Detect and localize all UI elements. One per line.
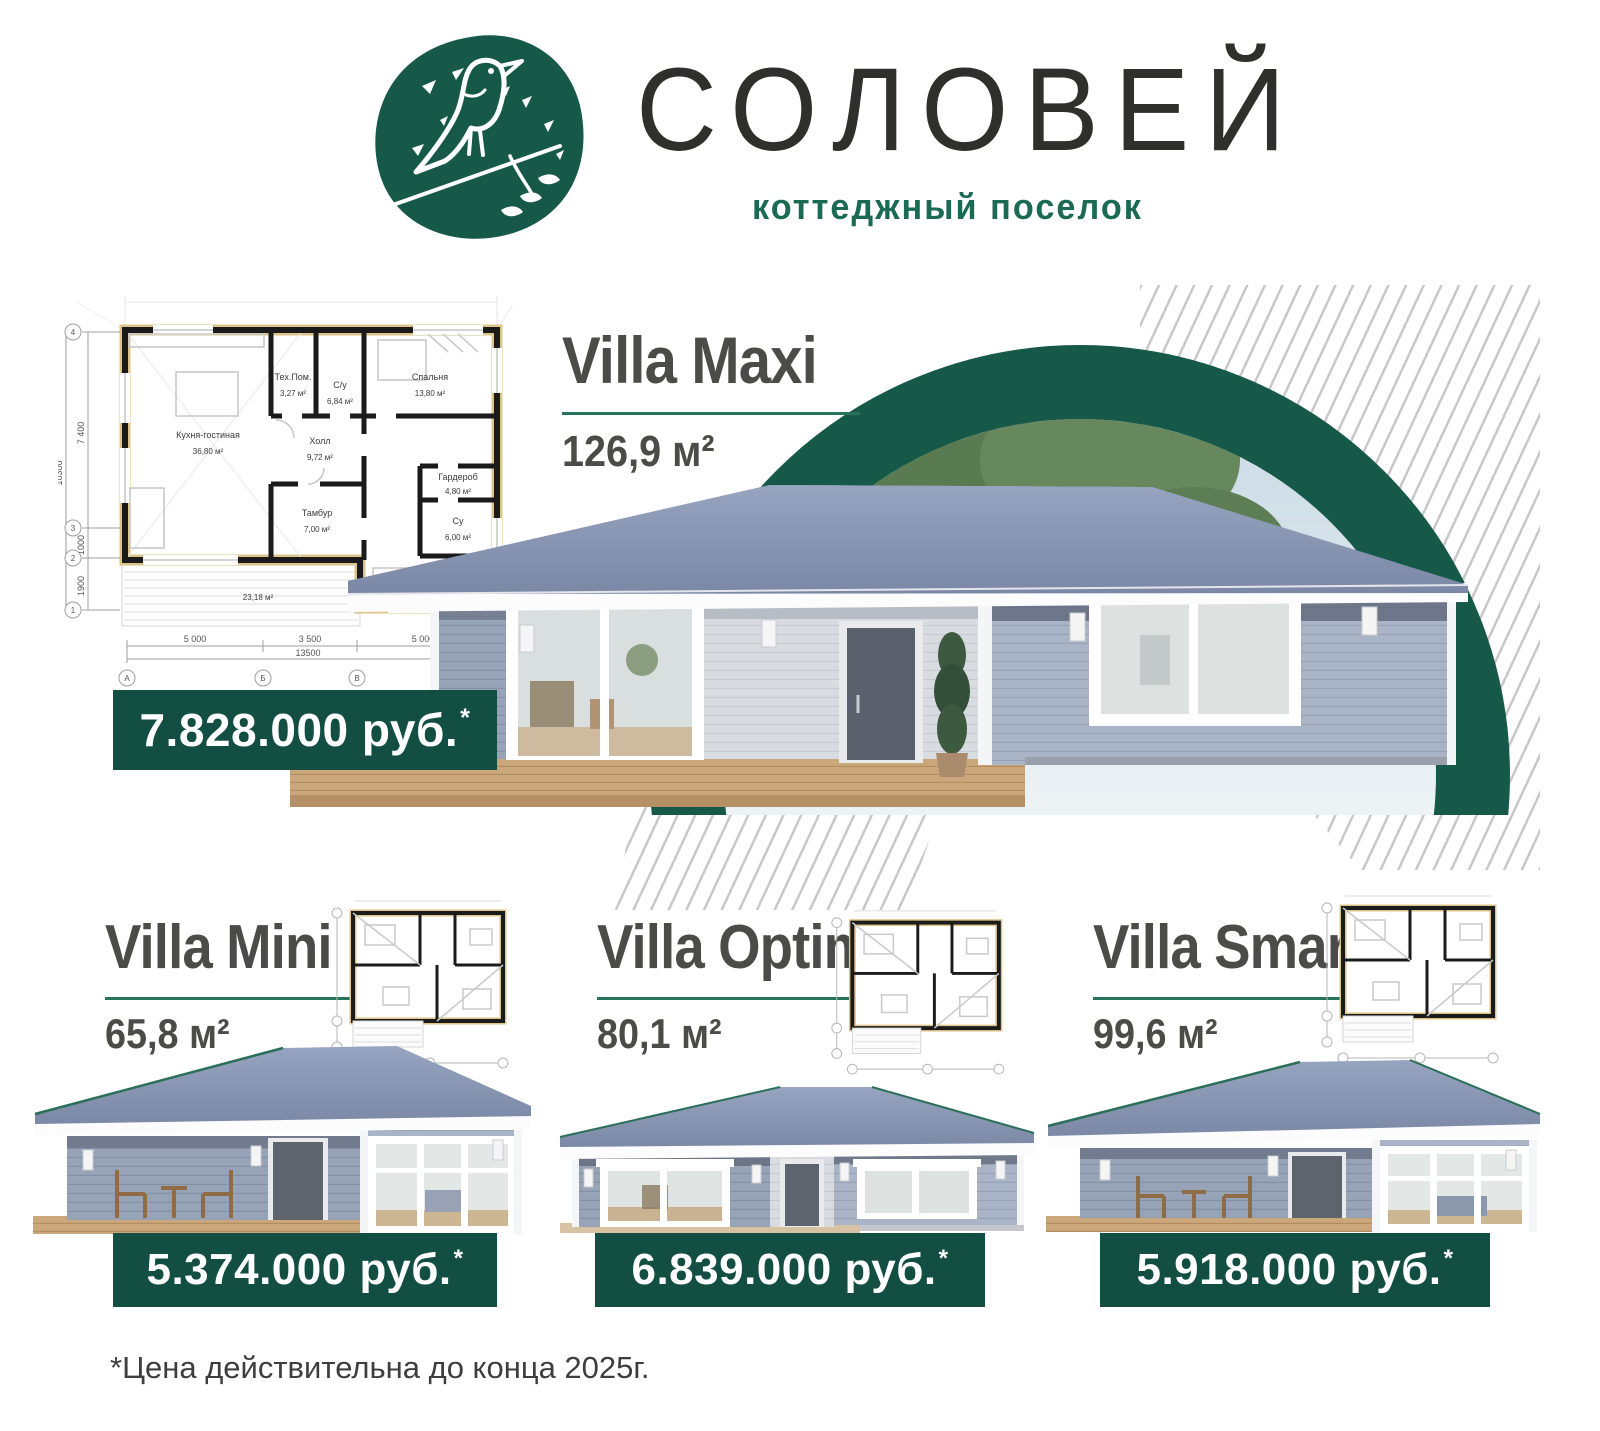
- dim-label: 7 400: [76, 422, 86, 445]
- price-text: 5.374.000 руб.: [146, 1245, 451, 1295]
- villa-optima-render: [552, 1075, 1042, 1235]
- room-label: Холл: [309, 436, 330, 446]
- cypress-plant: [934, 632, 970, 777]
- villa-smart-render: [1040, 1048, 1545, 1235]
- grid-label: 1: [71, 606, 76, 615]
- dim-label: 1900: [76, 576, 86, 596]
- price-asterisk: *: [939, 1245, 949, 1273]
- price-text: 6.839.000 руб.: [631, 1245, 936, 1295]
- villa-optima-price-badge: 6.839.000 руб.*: [595, 1233, 985, 1307]
- villa-maxi-price-badge: 7.828.000 руб.*: [113, 690, 497, 770]
- nightingale-bird-icon: [352, 28, 592, 246]
- villa-maxi-info: Villa Maxi 126,9 м²: [562, 322, 860, 477]
- villa-title: Villa Mini: [105, 912, 341, 983]
- grid-label: Б: [260, 674, 265, 683]
- villa-mini-price-badge: 5.374.000 руб.*: [113, 1233, 497, 1307]
- price-disclaimer: *Цена действительна до конца 2025г.: [110, 1350, 650, 1386]
- title-underline: [562, 412, 860, 415]
- brand-subtitle: коттеджный поселок: [752, 186, 1143, 228]
- grid-label: 3: [71, 524, 76, 533]
- price-asterisk: *: [454, 1245, 464, 1273]
- room-area: 3,27 м²: [280, 389, 306, 398]
- room-label: Спальня: [412, 372, 448, 382]
- price-text: 5.918.000 руб.: [1136, 1245, 1441, 1295]
- villa-smart-price-badge: 5.918.000 руб.*: [1100, 1233, 1490, 1307]
- terrace-area: 23,18 м²: [243, 593, 274, 602]
- brand-logo: [352, 28, 592, 246]
- grid-label: 2: [71, 554, 76, 563]
- villa-mini-render: [25, 1032, 540, 1237]
- price-asterisk: *: [1444, 1245, 1454, 1273]
- dim-label: 5 000: [184, 634, 207, 644]
- villa-smart-floor-plan: [1315, 890, 1530, 1065]
- villa-optima-floor-plan: [825, 903, 1035, 1078]
- room-area: 13,80 м²: [415, 389, 446, 398]
- poster: СОЛОВЕЙ коттеджный поселок: [0, 0, 1600, 1431]
- villa-title: Villa Maxi: [562, 322, 824, 398]
- room-area: 6,84 м²: [327, 397, 353, 406]
- price-text: 7.828.000 руб.: [139, 703, 458, 757]
- grid-label: А: [124, 674, 130, 683]
- price-asterisk: *: [460, 704, 470, 733]
- brand-title: СОЛОВЕЙ: [636, 42, 1301, 178]
- grid-label: 4: [71, 328, 76, 337]
- dim-label: 10300: [58, 460, 64, 485]
- room-area: 36,80 м²: [193, 447, 224, 456]
- room-label: Кухня-гостиная: [176, 430, 240, 440]
- room-label: С/у: [333, 380, 347, 390]
- room-label: Тех.Пом.: [275, 372, 312, 382]
